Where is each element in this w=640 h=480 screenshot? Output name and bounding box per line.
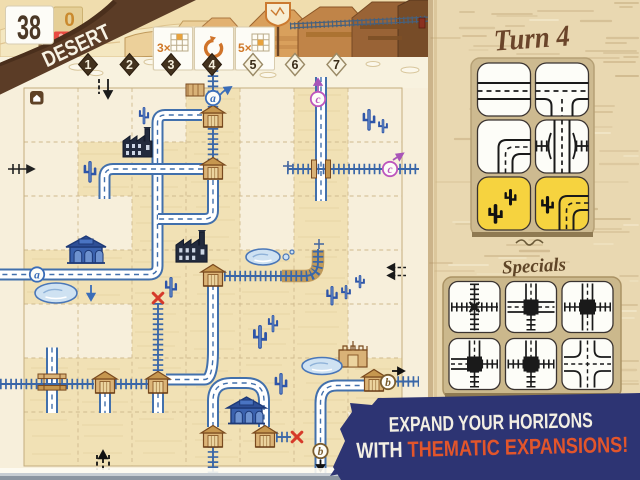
svg-text:2: 2 [126,58,133,72]
svg-text:Specials: Specials [502,254,567,278]
svg-text:3: 3 [168,58,175,72]
svg-text:7: 7 [333,58,340,72]
svg-text:5×: 5× [238,41,252,55]
svg-text:c: c [315,94,320,106]
svg-text:38: 38 [17,9,41,47]
svg-text:Turn 4: Turn 4 [493,19,571,57]
svg-text:c: c [387,164,392,176]
svg-text:0: 0 [64,10,75,31]
svg-text:6: 6 [292,58,299,72]
svg-text:a: a [210,93,216,105]
svg-text:b: b [385,377,391,389]
svg-text:4: 4 [209,58,216,72]
svg-text:b: b [318,446,324,458]
svg-text:1: 1 [85,58,92,72]
svg-text:5: 5 [250,58,257,72]
svg-text:a: a [34,269,40,281]
svg-text:3×: 3× [157,41,171,55]
